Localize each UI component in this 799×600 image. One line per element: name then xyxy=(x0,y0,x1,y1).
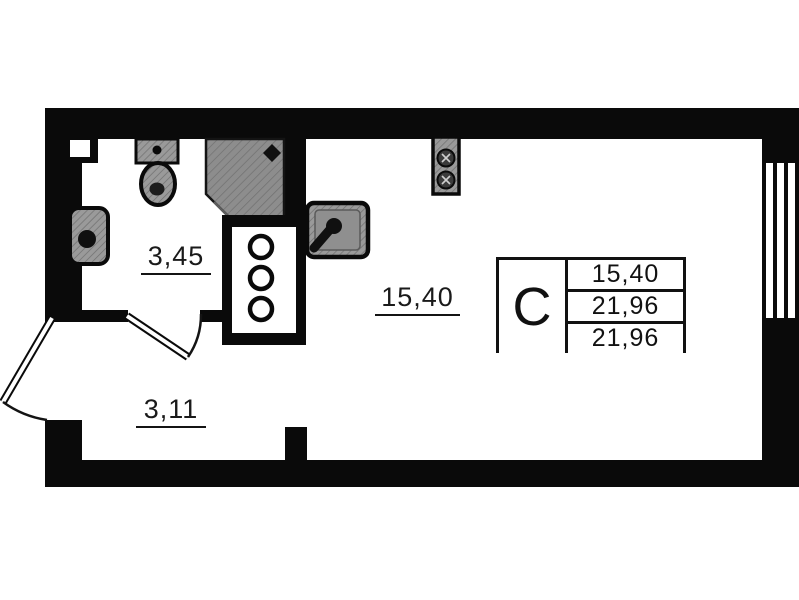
bathroom-area-label: 3,45 xyxy=(141,243,211,275)
faucet-base xyxy=(326,218,342,234)
wall-top xyxy=(45,108,799,139)
legend-total-area-2: 21,96 xyxy=(568,324,683,353)
wall-left-lower xyxy=(45,420,82,487)
utility-shaft-icon xyxy=(222,215,306,345)
door-swing-arc xyxy=(3,402,47,420)
wall-kitchen-stub-bottom xyxy=(285,427,307,463)
window-frame-line xyxy=(762,163,766,318)
wall-corner-notch xyxy=(70,140,90,157)
window-frame-line xyxy=(784,163,788,318)
wash-basin-icon xyxy=(70,208,108,264)
living-area-label: 15,40 xyxy=(375,284,460,316)
basin-drain xyxy=(78,230,96,248)
wall-bathroom-bottom xyxy=(45,310,128,322)
window-frame-line xyxy=(773,163,777,318)
shower-cabin-icon xyxy=(206,139,284,220)
window xyxy=(762,163,799,318)
riser-pipe-icon xyxy=(250,298,272,320)
toilet-icon xyxy=(136,139,178,205)
bathroom-door xyxy=(127,314,201,357)
riser-pipe-icon xyxy=(250,267,272,289)
kitchen-sink-icon xyxy=(307,203,368,257)
legend-total-area: 21,96 xyxy=(568,292,683,321)
stove-icon xyxy=(433,137,459,194)
door-leaf-core xyxy=(127,316,188,357)
toilet-button xyxy=(153,146,162,155)
door-swing-arc xyxy=(188,314,201,357)
door-leaf-core xyxy=(3,318,52,402)
legend-living-area: 15,40 xyxy=(568,260,683,289)
unit-legend-table: С 15,40 21,96 21,96 xyxy=(496,257,686,353)
window-opening xyxy=(762,163,799,318)
floor-plan: 3,45 15,40 3,11 С 15,40 21,96 21,96 xyxy=(0,0,799,600)
hallway-area-label: 3,11 xyxy=(136,396,206,428)
window-frame-line xyxy=(795,163,799,318)
wall-bottom xyxy=(45,460,799,487)
entrance-door xyxy=(3,318,52,420)
unit-type-letter: С xyxy=(499,260,565,353)
riser-pipe-icon xyxy=(250,236,272,258)
toilet-drain xyxy=(150,183,165,196)
